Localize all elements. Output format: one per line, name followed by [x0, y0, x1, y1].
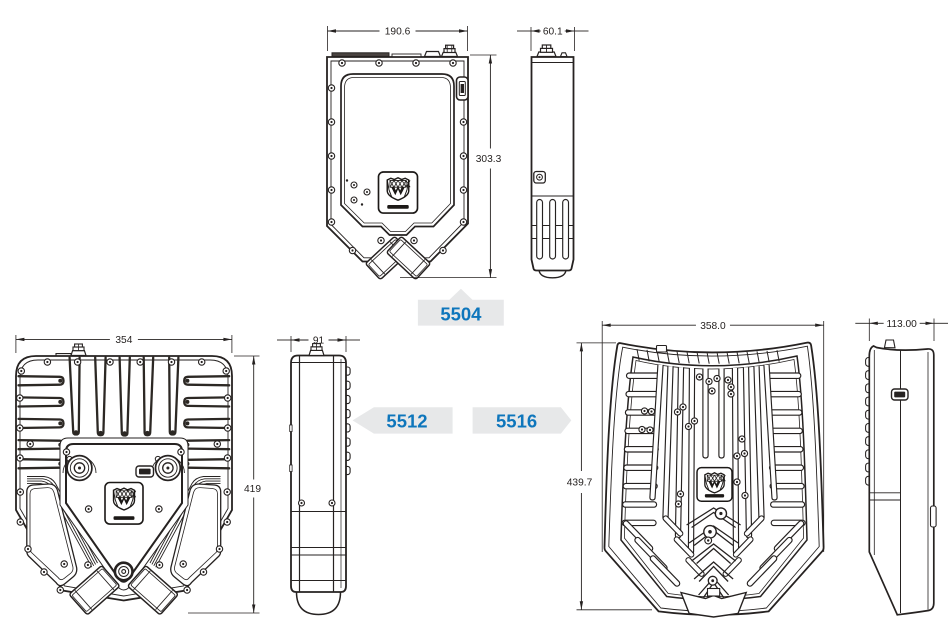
svg-text:5504: 5504	[440, 304, 482, 325]
svg-text:5516: 5516	[496, 410, 537, 431]
svg-text:358.0: 358.0	[700, 321, 726, 332]
svg-text:113.00: 113.00	[886, 319, 917, 330]
svg-text:5512: 5512	[386, 410, 427, 431]
svg-text:60.1: 60.1	[543, 27, 563, 38]
svg-text:303.3: 303.3	[476, 154, 502, 165]
svg-text:439.7: 439.7	[567, 478, 593, 489]
svg-text:354: 354	[115, 335, 132, 346]
svg-text:190.6: 190.6	[385, 27, 411, 38]
svg-text:91: 91	[313, 336, 325, 347]
svg-text:419: 419	[244, 484, 261, 495]
